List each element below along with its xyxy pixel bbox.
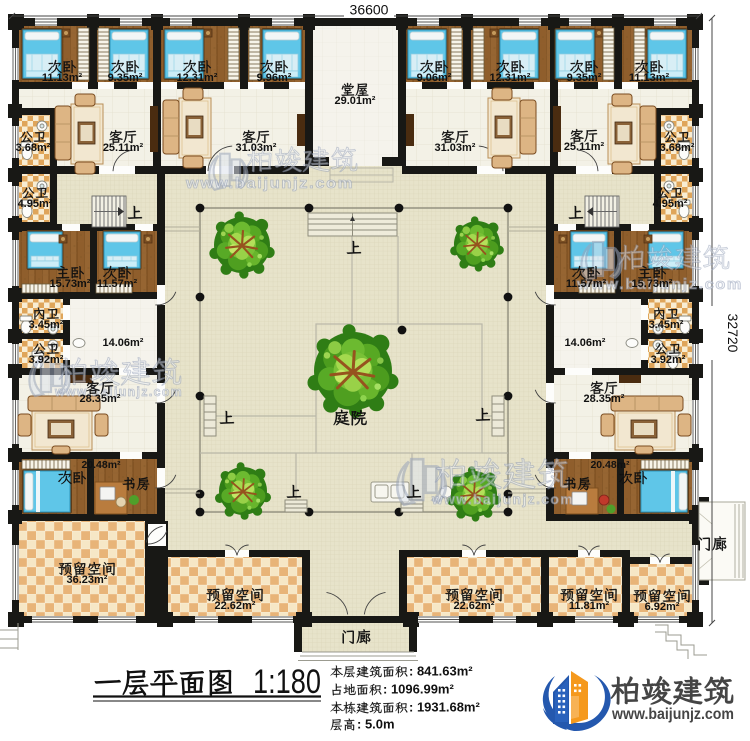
svg-text:: 841.63m²: : 841.63m² [409, 664, 473, 679]
svg-text:11.13m²: 11.13m² [42, 72, 83, 84]
svg-text:1:180: 1:180 [253, 663, 321, 701]
svg-text:22.62m²: 22.62m² [454, 600, 495, 612]
svg-text:3.68m²: 3.68m² [16, 142, 51, 154]
svg-text:14.06m²: 14.06m² [565, 337, 606, 349]
svg-text:www.baijunjz.com: www.baijunjz.com [185, 175, 354, 192]
svg-text:25.11m²: 25.11m² [103, 142, 144, 154]
svg-text:11.57m²: 11.57m² [566, 278, 607, 290]
svg-text:31.03m²: 31.03m² [435, 142, 476, 154]
svg-text:3.45m²: 3.45m² [649, 319, 684, 331]
svg-text:6.92m²: 6.92m² [645, 601, 680, 613]
svg-text:9.96m²: 9.96m² [257, 72, 292, 84]
svg-text:12.31m²: 12.31m² [490, 72, 531, 84]
svg-text:: 1096.99m²: : 1096.99m² [383, 682, 454, 697]
svg-text:22.62m²: 22.62m² [215, 600, 256, 612]
svg-text:32720: 32720 [725, 314, 741, 353]
svg-text:15.73m²: 15.73m² [632, 278, 673, 290]
svg-text:15.73m²: 15.73m² [50, 278, 91, 290]
svg-text:: 1931.68m²: : 1931.68m² [409, 700, 480, 715]
svg-text:28.35m²: 28.35m² [584, 393, 625, 405]
svg-text:3.45m²: 3.45m² [29, 319, 64, 331]
svg-text:31.03m²: 31.03m² [236, 142, 277, 154]
svg-text:3.68m²: 3.68m² [660, 142, 695, 154]
svg-text:20.48m²: 20.48m² [81, 459, 121, 471]
svg-text:11.13m²: 11.13m² [629, 72, 670, 84]
svg-text:3.92m²: 3.92m² [651, 354, 686, 366]
svg-text:12.31m²: 12.31m² [177, 72, 218, 84]
svg-text:14.06m²: 14.06m² [103, 337, 144, 349]
svg-text:9.06m²: 9.06m² [417, 72, 452, 84]
svg-text:4.95m²: 4.95m² [18, 198, 53, 210]
svg-text:29.01m²: 29.01m² [335, 95, 376, 107]
svg-text:36600: 36600 [350, 2, 389, 18]
svg-text:11.81m²: 11.81m² [569, 600, 610, 612]
svg-text:28.35m²: 28.35m² [80, 393, 121, 405]
svg-text:36.23m²: 36.23m² [67, 574, 108, 586]
svg-text:3.92m²: 3.92m² [29, 354, 64, 366]
svg-text:11.57m²: 11.57m² [97, 278, 138, 290]
svg-text:9.35m²: 9.35m² [567, 72, 602, 84]
svg-text:4.95m²: 4.95m² [653, 198, 688, 210]
svg-text:20.48m²: 20.48m² [590, 459, 630, 471]
svg-text:9.35m²: 9.35m² [108, 72, 143, 84]
svg-text:: 5.0m: : 5.0m [357, 717, 395, 732]
svg-text:www.baijunjz.com: www.baijunjz.com [611, 706, 734, 723]
svg-text:www.baijunjz.com: www.baijunjz.com [431, 492, 574, 507]
svg-text:25.11m²: 25.11m² [564, 141, 605, 153]
